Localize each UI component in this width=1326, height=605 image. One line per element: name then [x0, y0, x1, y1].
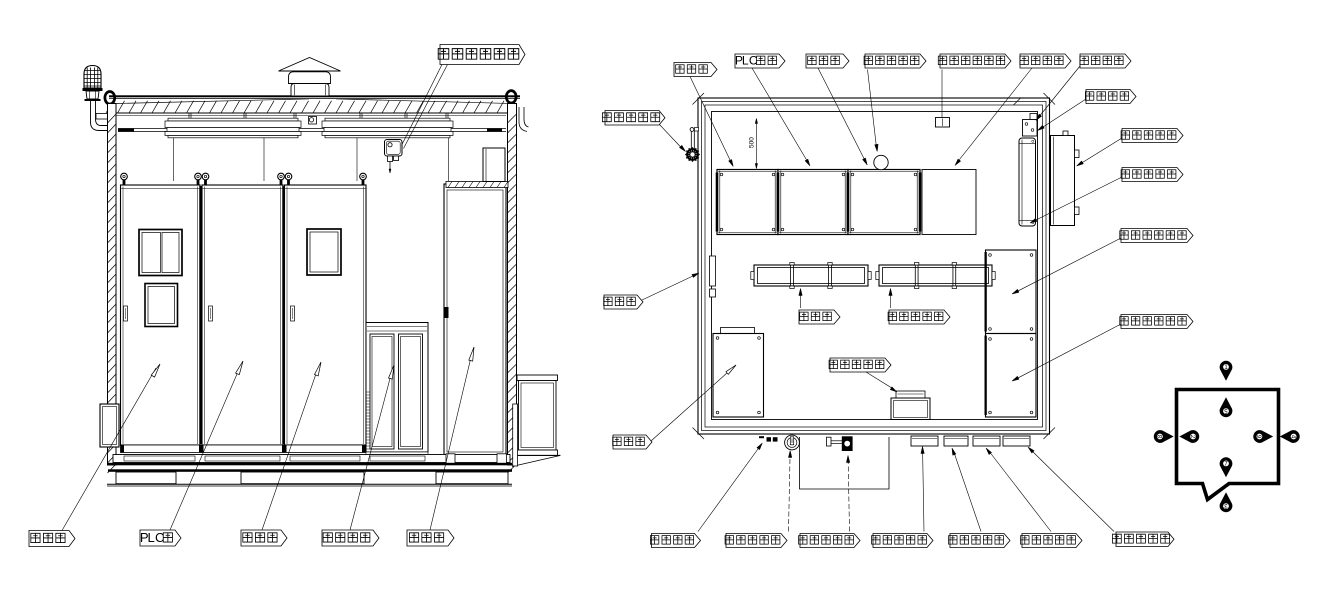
- svg-text:L: L: [742, 54, 749, 68]
- svg-text:L: L: [148, 530, 155, 545]
- svg-text:500: 500: [749, 137, 756, 148]
